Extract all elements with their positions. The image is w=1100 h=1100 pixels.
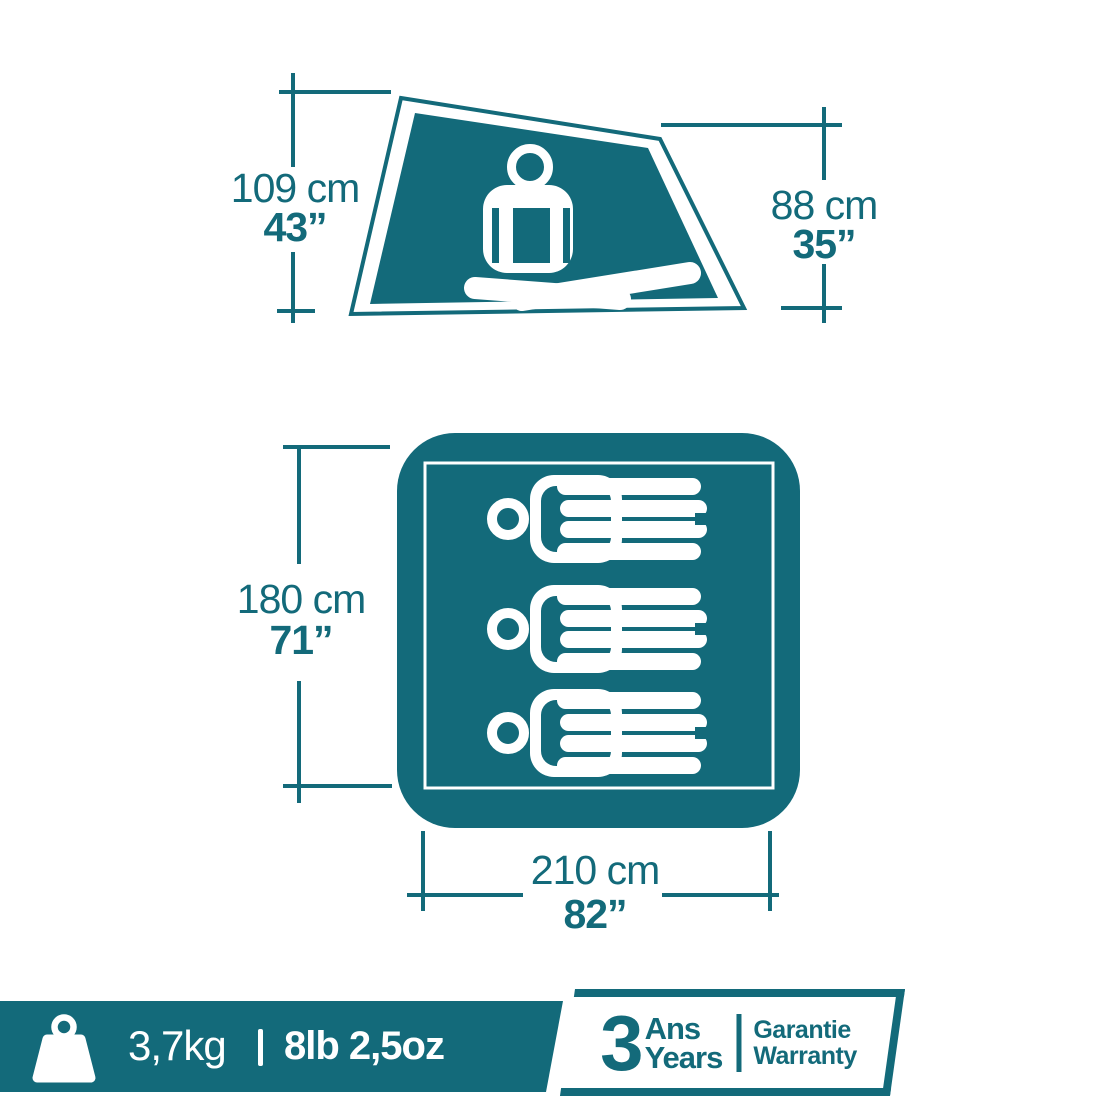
warranty-unit-en: Years — [645, 1043, 723, 1072]
dim-value-metric: 109 cm — [205, 167, 385, 209]
dim-value-imperial: 82” — [505, 893, 685, 935]
dim-value-metric: 210 cm — [505, 849, 685, 891]
weight-icon — [28, 1012, 100, 1084]
dim-line — [822, 264, 826, 323]
warranty-word-en: Warranty — [753, 1043, 856, 1069]
warranty-content: 3 Ans Years Garantie Warranty — [567, 997, 889, 1088]
dim-line — [291, 73, 295, 167]
dim-tick — [277, 309, 315, 313]
tent-dimensions-diagram: 109 cm 43” 88 cm 35” — [0, 0, 1100, 1100]
dim-tick — [421, 831, 425, 911]
dim-line — [297, 447, 301, 564]
warranty-units: Ans Years — [645, 1014, 723, 1072]
tent-side-view — [330, 80, 770, 335]
dim-value-metric: 88 cm — [734, 184, 914, 226]
dim-tick — [283, 784, 392, 788]
weight-imperial: 8lb 2,5oz — [284, 1024, 444, 1068]
dim-tick — [279, 90, 391, 94]
weight-separator — [258, 1029, 263, 1066]
weight-metric: 3,7kg — [128, 1024, 226, 1068]
tent-floor-plan — [390, 425, 810, 835]
warranty-text: Garantie Warranty — [753, 1017, 856, 1069]
warranty-years: 3 — [600, 1003, 641, 1083]
dim-value-metric: 180 cm — [211, 578, 391, 620]
dim-tick — [768, 831, 772, 911]
warranty-badge: 3 Ans Years Garantie Warranty — [560, 989, 905, 1096]
dim-tick — [661, 123, 842, 127]
dim-tick — [283, 445, 390, 449]
warranty-divider — [736, 1014, 741, 1072]
dim-line — [822, 107, 826, 180]
dim-value-imperial: 35” — [734, 223, 914, 265]
warranty-unit-fr: Ans — [645, 1014, 723, 1043]
dim-tick — [781, 306, 842, 310]
dim-value-imperial: 43” — [205, 206, 385, 248]
dim-value-imperial: 71” — [211, 619, 391, 661]
warranty-word-fr: Garantie — [753, 1017, 856, 1043]
